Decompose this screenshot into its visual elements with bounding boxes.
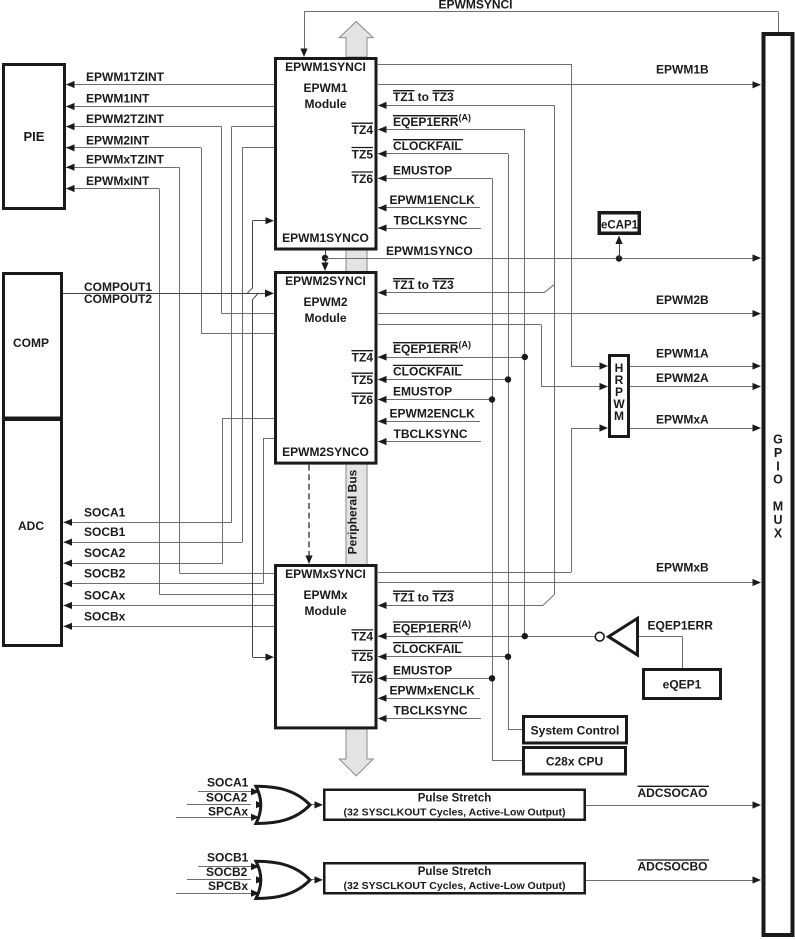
svg-text:O: O <box>773 473 783 487</box>
svg-text:TBCLKSYNC: TBCLKSYNC <box>394 427 468 441</box>
svg-text:EPWM2ENCLK: EPWM2ENCLK <box>390 407 476 421</box>
svg-text:(A): (A) <box>459 619 472 629</box>
svg-text:M: M <box>773 500 783 514</box>
svg-text:Module: Module <box>305 97 347 111</box>
svg-text:SOCBx: SOCBx <box>84 609 126 623</box>
svg-text:EPWM1INT: EPWM1INT <box>86 92 150 106</box>
svg-text:EPWMxB: EPWMxB <box>656 561 709 575</box>
svg-text:EMUSTOP: EMUSTOP <box>393 164 452 178</box>
svg-text:SPCAx: SPCAx <box>208 804 248 818</box>
svg-text:EPWM1A: EPWM1A <box>656 347 709 361</box>
svg-text:EPWM2A: EPWM2A <box>656 371 709 385</box>
svg-text:SOCA1: SOCA1 <box>84 505 126 519</box>
svg-text:C28x CPU: C28x CPU <box>546 755 603 769</box>
svg-text:SOCAx: SOCAx <box>84 589 126 603</box>
svg-text:EPWMxINT: EPWMxINT <box>86 174 150 188</box>
svg-text:TZ5: TZ5 <box>352 147 374 161</box>
svg-text:EPWM2: EPWM2 <box>303 295 347 309</box>
svg-text:SOCA2: SOCA2 <box>206 791 248 805</box>
svg-text:ADCSOCAO: ADCSOCAO <box>638 786 708 800</box>
svg-text:U: U <box>773 513 782 527</box>
svg-text:SOCB2: SOCB2 <box>206 865 248 879</box>
svg-text:EQEP1ERR: EQEP1ERR <box>648 619 714 633</box>
svg-text:SOCB2: SOCB2 <box>84 567 126 581</box>
svg-text:EPWMxA: EPWMxA <box>656 413 709 427</box>
svg-text:TZ1 to TZ3: TZ1 to TZ3 <box>393 90 454 104</box>
svg-text:EMUSTOP: EMUSTOP <box>393 385 452 399</box>
svg-text:EPWM1SYNCO: EPWM1SYNCO <box>386 244 473 258</box>
svg-text:CLOCKFAIL: CLOCKFAIL <box>393 365 462 379</box>
svg-text:SPCBx: SPCBx <box>208 879 248 893</box>
svg-text:TBCLKSYNC: TBCLKSYNC <box>394 213 468 227</box>
svg-text:TZ4: TZ4 <box>352 123 374 137</box>
svg-text:Pulse Stretch: Pulse Stretch <box>418 793 492 805</box>
svg-text:EPWM1B: EPWM1B <box>656 63 709 77</box>
svg-text:TZ5: TZ5 <box>352 373 374 387</box>
svg-text:EPWM1TZINT: EPWM1TZINT <box>86 70 165 84</box>
svg-text:EPWM1SYNCI: EPWM1SYNCI <box>285 60 366 74</box>
svg-text:COMP: COMP <box>13 336 49 350</box>
svg-text:(32 SYSCLKOUT Cycles, Active-L: (32 SYSCLKOUT Cycles, Active-Low Output) <box>344 807 566 819</box>
svg-text:EPWMx: EPWMx <box>303 588 347 602</box>
svg-text:EPWM1ENCLK: EPWM1ENCLK <box>390 193 476 207</box>
svg-text:Pulse Stretch: Pulse Stretch <box>418 866 492 878</box>
svg-text:PIE: PIE <box>24 129 45 144</box>
svg-text:TBCLKSYNC: TBCLKSYNC <box>394 704 468 718</box>
svg-text:I: I <box>776 459 779 473</box>
svg-text:eCAP1: eCAP1 <box>601 220 639 232</box>
svg-text:SOCA1: SOCA1 <box>207 776 249 790</box>
svg-text:X: X <box>774 526 783 540</box>
svg-text:G: G <box>773 433 783 447</box>
svg-text:EPWMxTZINT: EPWMxTZINT <box>86 153 165 167</box>
svg-text:EPWMSYNCI: EPWMSYNCI <box>439 0 513 12</box>
svg-text:P: P <box>774 446 782 460</box>
svg-text:SOCB1: SOCB1 <box>207 850 249 864</box>
svg-text:TZ5: TZ5 <box>352 650 374 664</box>
svg-text:Peripheral Bus: Peripheral Bus <box>346 469 360 554</box>
svg-text:(A): (A) <box>459 340 472 350</box>
svg-text:EMUSTOP: EMUSTOP <box>393 664 452 678</box>
svg-text:CLOCKFAIL: CLOCKFAIL <box>393 139 462 153</box>
svg-text:COMPOUT2: COMPOUT2 <box>84 292 152 306</box>
svg-text:Module: Module <box>305 604 347 618</box>
svg-text:CLOCKFAIL: CLOCKFAIL <box>393 642 462 656</box>
svg-text:ADC: ADC <box>18 519 44 533</box>
svg-text:ADCSOCBO: ADCSOCBO <box>638 860 708 874</box>
svg-text:TZ6: TZ6 <box>352 393 374 407</box>
svg-text:EQEP1ERR: EQEP1ERR <box>393 621 459 635</box>
svg-text:EPWMxSYNCI: EPWMxSYNCI <box>285 567 366 581</box>
svg-text:EPWMxENCLK: EPWMxENCLK <box>390 683 476 697</box>
svg-text:TZ1 to TZ3: TZ1 to TZ3 <box>393 591 454 605</box>
svg-text:TZ4: TZ4 <box>352 630 374 644</box>
svg-text:EPWM1SYNCO: EPWM1SYNCO <box>282 231 369 245</box>
svg-text:SOCB1: SOCB1 <box>84 525 126 539</box>
svg-text:(32 SYSCLKOUT Cycles, Active-L: (32 SYSCLKOUT Cycles, Active-Low Output) <box>344 880 566 892</box>
svg-text:EPWM2SYNCI: EPWM2SYNCI <box>285 274 366 288</box>
svg-text:TZ1 to TZ3: TZ1 to TZ3 <box>393 278 454 292</box>
svg-text:SOCA2: SOCA2 <box>84 546 126 560</box>
svg-text:(A): (A) <box>459 113 472 123</box>
svg-text:Module: Module <box>305 311 347 325</box>
svg-text:M: M <box>614 409 624 423</box>
svg-text:EQEP1ERR: EQEP1ERR <box>393 115 459 129</box>
svg-text:TZ4: TZ4 <box>352 351 374 365</box>
svg-text:EPWM2INT: EPWM2INT <box>86 133 150 147</box>
svg-text:System Control: System Control <box>531 724 620 738</box>
svg-text:EPWM2SYNCO: EPWM2SYNCO <box>282 445 369 459</box>
svg-text:TZ6: TZ6 <box>352 672 374 686</box>
svg-text:TZ6: TZ6 <box>352 172 374 186</box>
svg-text:eQEP1: eQEP1 <box>663 678 702 692</box>
svg-text:EQEP1ERR: EQEP1ERR <box>393 342 459 356</box>
svg-text:EPWM2B: EPWM2B <box>656 293 709 307</box>
svg-text:EPWM1: EPWM1 <box>303 81 347 95</box>
svg-text:EPWM2TZINT: EPWM2TZINT <box>86 112 165 126</box>
